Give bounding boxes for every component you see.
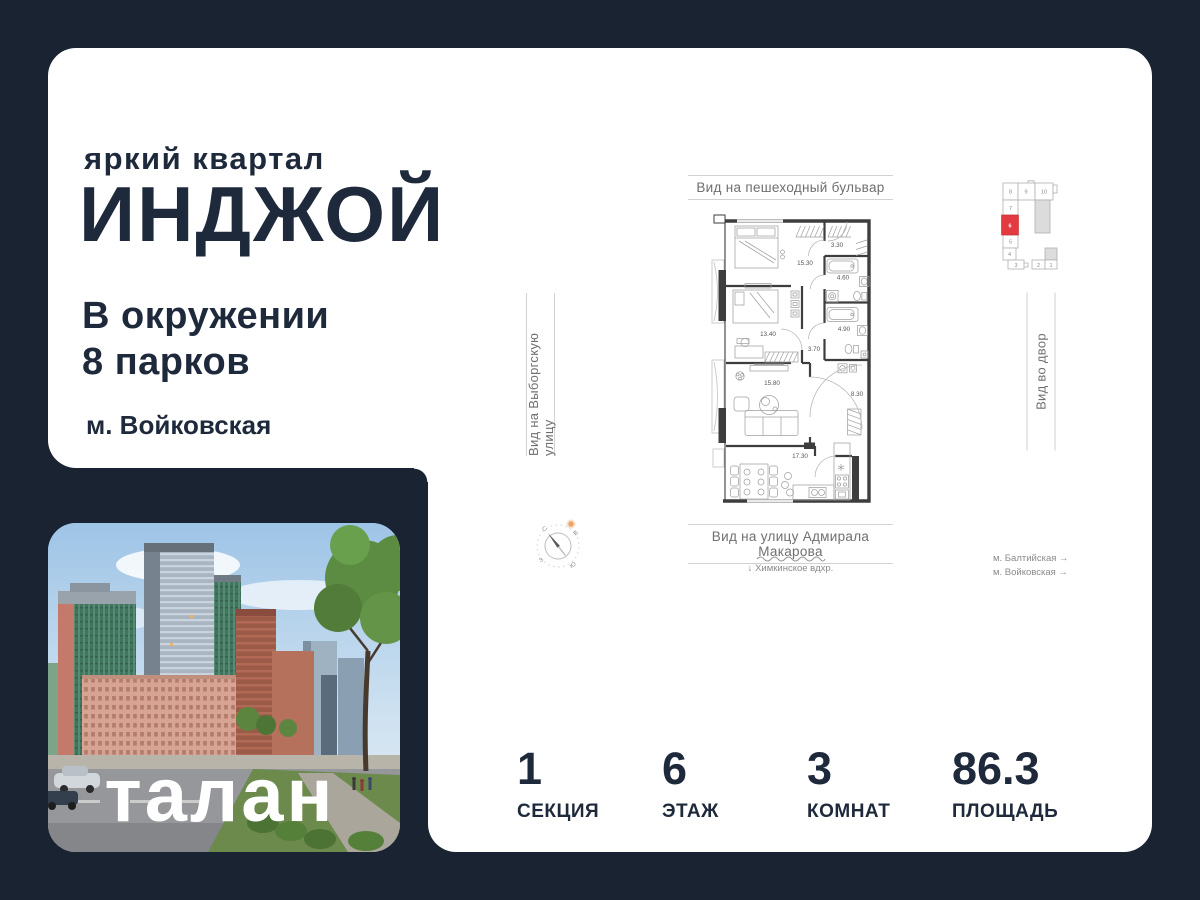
section-cell-4: 4	[1008, 252, 1011, 258]
compass-icon: С В Ю З	[527, 515, 589, 577]
section-cell-8: 8	[1009, 190, 1012, 196]
brand-card	[48, 48, 448, 468]
stat-floor: 6 ЭТАЖ	[662, 746, 719, 823]
room-labels: 15.30 3.30 4.60 13.40 4.90 3.70 15.80 8.…	[760, 242, 864, 460]
wall-notch	[714, 215, 725, 223]
compass-west: З	[538, 557, 545, 564]
wall-block-left-2	[719, 408, 727, 443]
photo-card: талан	[48, 523, 400, 852]
stat-area: 86.3 ПЛОЩАДЬ	[952, 746, 1058, 823]
metro-notes: м. Балтийская → м. Войковская →	[993, 552, 1069, 579]
room-label-hall: 3.70	[808, 346, 821, 353]
section-cell-7: 7	[1009, 206, 1012, 212]
view-title-left: Вид на Выборгскую улицу	[526, 293, 555, 456]
brand-name: ИНДЖОЙ	[79, 173, 445, 255]
room-label-bedroom2: 13.40	[760, 331, 776, 338]
room-label-living: 15.80	[764, 380, 780, 387]
section-cell-1: 1	[1049, 263, 1052, 269]
room-label-corridor: 8.30	[851, 391, 864, 398]
water-note-block: ↓ Химкинское вдхр.	[688, 554, 893, 576]
developer-logo: талан	[105, 753, 336, 838]
compass-east: В	[573, 530, 580, 537]
section-cell-9: 9	[1024, 190, 1027, 196]
section-cell-2: 2	[1037, 263, 1040, 269]
water-note: ↓ Химкинское вдхр.	[688, 562, 893, 576]
stat-area-value: 86.3	[952, 746, 1058, 792]
compass-south: Ю	[569, 561, 577, 569]
view-title-top: Вид на пешеходный бульвар	[688, 175, 893, 200]
stat-floor-value: 6	[662, 746, 719, 792]
compass-sun-dot	[568, 521, 573, 526]
card-junction-fillet	[414, 468, 428, 482]
room-label-bedroom1: 15.30	[797, 260, 813, 267]
wall-block-kitchen	[852, 456, 859, 501]
section-cell-6: 6	[1008, 224, 1011, 230]
down-arrow-icon: ↓	[748, 563, 753, 574]
wave-icon	[756, 554, 826, 562]
stat-section-label: СЕКЦИЯ	[517, 801, 599, 823]
section-key-plan: 8 9 10 7 6 5 4 3 2 1	[1000, 180, 1060, 270]
stat-rooms-value: 3	[807, 746, 890, 792]
city-render-image: талан	[48, 523, 400, 852]
floor-plan: 15.30 3.30 4.60 13.40 4.90 3.70 15.80 8.…	[695, 213, 895, 513]
stat-section: 1 СЕКЦИЯ	[517, 746, 599, 823]
headline: В окружении 8 парков	[82, 293, 329, 385]
stat-rooms-label: КОМНАТ	[807, 801, 890, 823]
section-cell-3: 3	[1014, 263, 1017, 269]
wall-block-left-1	[719, 270, 727, 321]
stat-section-value: 1	[517, 746, 599, 792]
metro-note-voykovskaya: м. Войковская →	[993, 566, 1069, 580]
headline-line2: 8 парков	[82, 339, 329, 385]
room-label-bath1: 4.60	[837, 275, 850, 282]
section-cell-5: 5	[1009, 240, 1012, 246]
door-swings	[781, 222, 862, 477]
headline-line1: В окружении	[82, 293, 329, 339]
metro-note-baltiyskaya: м. Балтийская →	[993, 552, 1069, 566]
stat-area-label: ПЛОЩАДЬ	[952, 801, 1058, 823]
room-label-entry: 3.30	[831, 242, 844, 249]
room-label-kitchen: 17.30	[792, 453, 808, 460]
view-title-right: Вид во двор	[1027, 293, 1056, 451]
stat-rooms: 3 КОМНАТ	[807, 746, 890, 823]
metro-station: м. Войковская	[86, 410, 271, 441]
compass-north: С	[542, 525, 550, 533]
stat-floor-label: ЭТАЖ	[662, 801, 719, 823]
room-label-bath2: 4.90	[838, 326, 851, 333]
section-cell-10: 10	[1041, 190, 1047, 196]
